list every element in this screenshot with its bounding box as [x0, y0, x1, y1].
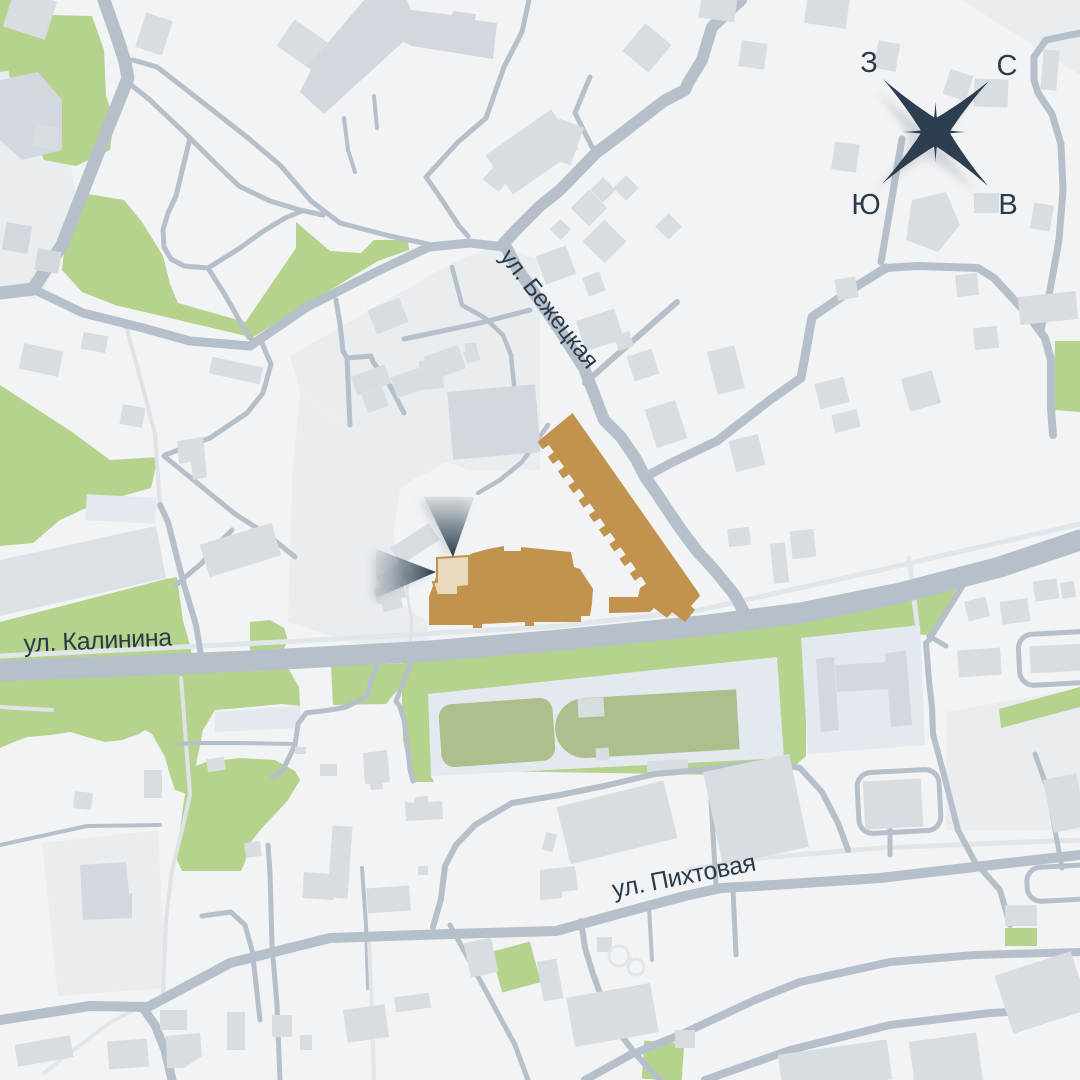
svg-text:В: В	[998, 189, 1017, 221]
svg-text:З: З	[860, 47, 878, 79]
svg-text:Ю: Ю	[851, 189, 880, 221]
svg-text:С: С	[997, 50, 1018, 82]
